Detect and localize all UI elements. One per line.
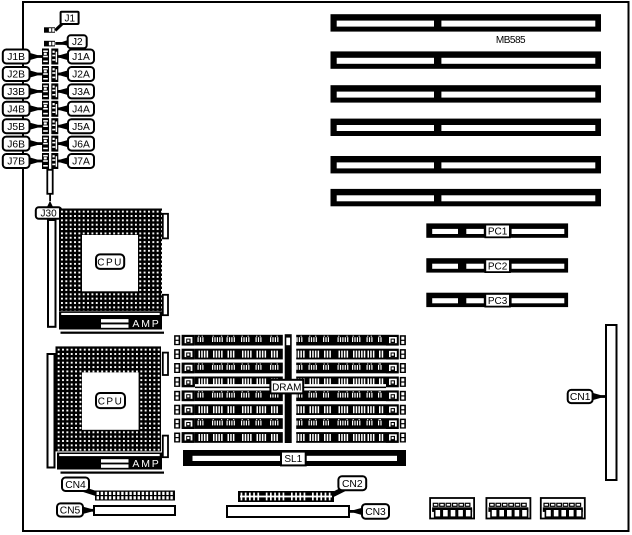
svg-text:CPU: CPU	[97, 257, 123, 268]
svg-text:MB585: MB585	[496, 35, 526, 46]
svg-text:SL1: SL1	[284, 454, 302, 465]
svg-text:J6B: J6B	[7, 139, 25, 150]
svg-text:J4A: J4A	[72, 105, 90, 116]
svg-text:PC3: PC3	[488, 296, 508, 307]
svg-text:DRAM: DRAM	[272, 382, 301, 393]
svg-text:CN3: CN3	[365, 507, 386, 518]
svg-text:J2: J2	[72, 37, 83, 48]
svg-text:J2A: J2A	[72, 70, 90, 81]
svg-text:J1A: J1A	[72, 52, 90, 63]
svg-text:CN4: CN4	[65, 480, 86, 491]
svg-text:PC1: PC1	[488, 227, 508, 238]
svg-text:PC2: PC2	[488, 261, 508, 272]
svg-text:J2B: J2B	[7, 70, 25, 81]
svg-text:J1: J1	[65, 13, 76, 24]
svg-text:J7A: J7A	[72, 157, 90, 168]
svg-text:J5B: J5B	[7, 122, 25, 133]
svg-text:J5A: J5A	[72, 122, 90, 133]
svg-text:J4B: J4B	[7, 105, 25, 116]
svg-text:CN2: CN2	[342, 479, 363, 490]
svg-text:J1B: J1B	[7, 52, 25, 63]
svg-text:J3A: J3A	[72, 87, 90, 98]
svg-text:AMP: AMP	[132, 458, 160, 470]
svg-text:CN1: CN1	[570, 392, 591, 403]
svg-text:AMP: AMP	[132, 318, 160, 330]
svg-text:CPU: CPU	[98, 396, 124, 407]
svg-text:CN5: CN5	[60, 506, 81, 517]
svg-text:J3B: J3B	[7, 87, 25, 98]
svg-text:J6A: J6A	[72, 139, 90, 150]
svg-text:J30: J30	[41, 209, 58, 220]
svg-text:J7B: J7B	[7, 157, 25, 168]
